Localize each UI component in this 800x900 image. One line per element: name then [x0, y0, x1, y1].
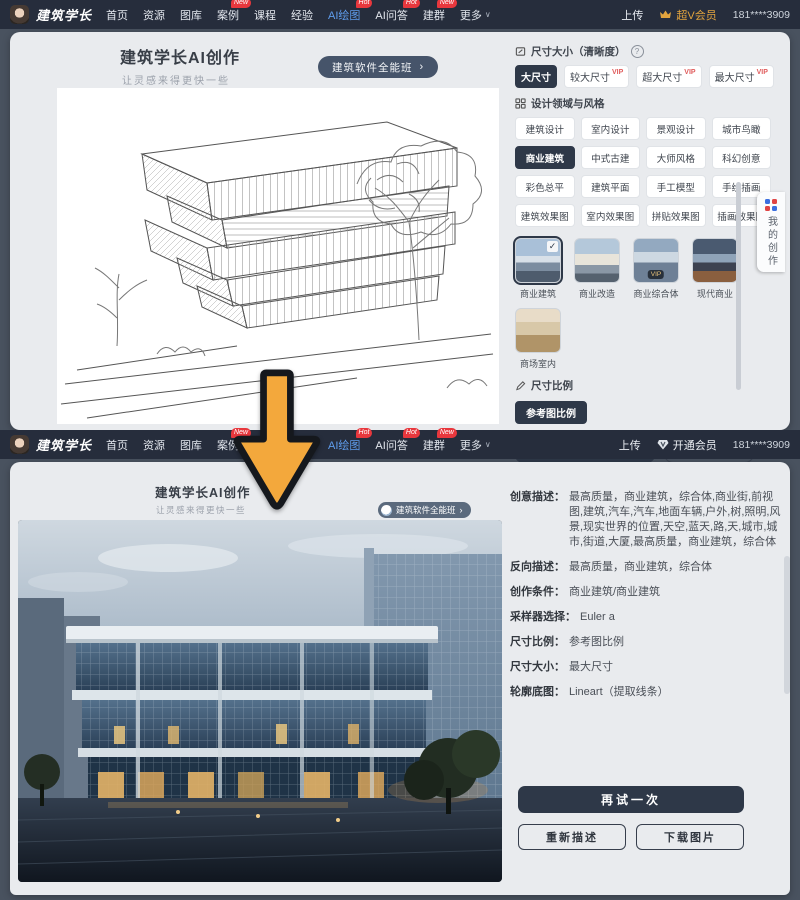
style-option[interactable]: 建筑平面 [581, 175, 641, 198]
vip-badge: VIP [648, 270, 664, 279]
field-value: 参考图比例 [569, 635, 786, 650]
redescribe-button[interactable]: 重新描述 [518, 824, 626, 850]
style-section-title: 设计领域与风格 [531, 96, 605, 111]
nav-item[interactable]: AI绘图 Hot [328, 437, 360, 453]
logo[interactable]: 建筑学长 [36, 5, 92, 24]
style-option-label: 彩色总平 [526, 180, 564, 194]
avatar[interactable] [10, 5, 29, 24]
nav-item[interactable]: 图库 [180, 7, 202, 23]
thumbnail-image [692, 238, 738, 283]
nav-item-label: 更多 [460, 7, 482, 23]
creation-card: 建筑学长AI创作 让灵感来得更快一些 建筑软件全能班 › [10, 32, 790, 430]
nav-item-label: AI问答 [375, 7, 407, 23]
chevron-down-icon: ∨ [485, 10, 491, 19]
size-option-label: 超大尺寸 [642, 69, 682, 84]
new-hot-badge: Hot [356, 428, 373, 438]
style-option[interactable]: 建筑效果图 [515, 204, 575, 227]
vip-badge: VIP [612, 69, 623, 76]
nav-right: 上传 开通会员 181****3909 [619, 437, 790, 453]
member-label: 超V会员 [676, 7, 716, 23]
style-thumbnail[interactable]: VIP 商业综合体 [633, 238, 679, 300]
style-option-label: 手绘插画 [722, 180, 760, 194]
style-option-label: 科幻创意 [722, 151, 760, 165]
chevron-down-icon: ∨ [485, 440, 491, 449]
style-option-label: 建筑设计 [526, 122, 564, 136]
render-scene [18, 520, 502, 882]
style-option[interactable]: 景观设计 [646, 117, 706, 140]
style-thumbnails: 商业建筑 商业改造 VIP [515, 238, 753, 370]
checkbox-checked-icon [547, 241, 558, 252]
style-option[interactable]: 拼贴效果图 [646, 204, 706, 227]
style-thumbnail[interactable]: 现代商业 [692, 238, 738, 300]
thumbnail-label: 商场室内 [515, 357, 561, 370]
thumbnail-label: 商业建筑 [515, 287, 561, 300]
nav-item-label: 案例 [217, 7, 239, 23]
result-field: 尺寸大小： 最大尺寸 [510, 660, 786, 675]
style-option-label: 大师风格 [657, 151, 695, 165]
style-option[interactable]: 城市鸟瞰 [712, 117, 772, 140]
style-thumbnail[interactable]: 商业建筑 [515, 238, 561, 300]
size-option-label: 最大尺寸 [715, 69, 755, 84]
chevron-right-icon: › [420, 61, 425, 73]
field-label: 采样器选择： [510, 610, 576, 625]
new-hot-badge: New [437, 428, 457, 438]
field-value: 最高质量，商业建筑，综合体,商业街,前视图,建筑,汽车,汽车,地面车辆,户外,树… [569, 490, 786, 550]
phone-number: 181****3909 [733, 439, 790, 451]
nav-item-label: AI绘图 [328, 437, 360, 453]
field-value: 商业建筑/商业建筑 [569, 585, 786, 600]
result-field: 尺寸比例： 参考图比例 [510, 635, 786, 650]
size-option-label: 较大尺寸 [570, 69, 610, 84]
nav-item-label: 首页 [106, 437, 128, 453]
nav-item[interactable]: 资源 [143, 437, 165, 453]
nav-item[interactable]: 案例 New [217, 7, 239, 23]
field-value: Lineart（提取线条） [569, 685, 786, 700]
style-options: 建筑设计 室内设计 景观设计 城市鸟瞰 商业建筑 [515, 117, 771, 227]
style-grid-icon [515, 98, 526, 109]
download-button[interactable]: 下载图片 [636, 824, 744, 850]
nav-item-label: 经验 [291, 7, 313, 23]
style-option-label: 城市鸟瞰 [722, 122, 760, 136]
member-label: 开通会员 [673, 437, 717, 453]
field-label: 轮廓底图： [510, 685, 565, 700]
chevron-right-icon: › [460, 505, 463, 515]
result-field: 反向描述： 最高质量，商业建筑，综合体 [510, 560, 786, 575]
thumbnail-label: 商业改造 [574, 287, 620, 300]
member-button[interactable]: 超V会员 [659, 7, 716, 23]
field-value: 最大尺寸 [569, 660, 786, 675]
new-hot-badge: Hot [403, 0, 420, 8]
field-label: 创作条件： [510, 585, 565, 600]
nav-item[interactable]: 图库 [180, 437, 202, 453]
help-icon[interactable]: ? [631, 45, 644, 58]
style-option-label: 手工模型 [657, 180, 695, 194]
style-option-label: 商业建筑 [526, 151, 564, 165]
nav-item[interactable]: 首页 [106, 437, 128, 453]
result-field: 采样器选择： Euler a [510, 610, 786, 625]
scrollbar[interactable] [784, 556, 790, 694]
my-creations-tab[interactable]: 我的创作 [757, 192, 785, 272]
style-option[interactable]: 中式古建 [581, 146, 641, 169]
style-option[interactable]: 科幻创意 [712, 146, 772, 169]
nav-item[interactable]: AI问答 Hot [375, 437, 407, 453]
style-option[interactable]: 彩色总平 [515, 175, 575, 198]
nav-item[interactable]: 建群 New [423, 437, 445, 453]
field-value: Euler a [580, 610, 786, 625]
course-icon [381, 505, 392, 516]
style-option[interactable]: 大师风格 [646, 146, 706, 169]
field-label: 尺寸比例： [510, 635, 565, 650]
nav-item[interactable]: AI问答 Hot [375, 7, 407, 23]
scrollbar[interactable] [736, 182, 741, 390]
size-option[interactable]: 大尺寸 [515, 65, 557, 88]
member-button[interactable]: 开通会员 [657, 437, 717, 453]
nav-item[interactable]: 更多 ∨ [460, 7, 491, 23]
nav-item-label: AI问答 [375, 437, 407, 453]
vip-diamond-icon [657, 439, 669, 450]
result-card: 建筑学长AI创作 让灵感来得更快一些 建筑软件全能班 › [10, 462, 790, 895]
top-navbar: 建筑学长 首页 资源 图库 [0, 0, 800, 29]
page: 建筑学长 首页 资源 图库 [0, 0, 800, 900]
ratio-section-header: 尺寸比例 [515, 378, 771, 393]
result-field: 轮廓底图： Lineart（提取线条） [510, 685, 786, 700]
thumbnail-label: 现代商业 [692, 287, 738, 300]
nav-item-label: 图库 [180, 7, 202, 23]
upload-button[interactable]: 上传 [621, 7, 643, 23]
page-subtitle: 让灵感来得更快一些 [122, 72, 240, 87]
nav-item[interactable]: 更多 ∨ [460, 437, 491, 453]
style-thumbnail[interactable]: 商场室内 [515, 308, 561, 370]
nav-item-label: 建群 [423, 437, 445, 453]
result-field: 创意描述： 最高质量，商业建筑，综合体,商业街,前视图,建筑,汽车,汽车,地面车… [510, 490, 786, 550]
result-details: 创意描述： 最高质量，商业建筑，综合体,商业街,前视图,建筑,汽车,汽车,地面车… [510, 490, 786, 710]
style-option-label: 景观设计 [657, 122, 695, 136]
nav-item[interactable]: 课程 [254, 7, 276, 23]
new-hot-badge: Hot [356, 0, 373, 8]
style-option-label: 中式古建 [591, 151, 629, 165]
nav-item-label: 资源 [143, 437, 165, 453]
style-option[interactable]: 室内效果图 [581, 204, 641, 227]
upload-button[interactable]: 上传 [619, 437, 641, 453]
ratio-section-title: 尺寸比例 [531, 378, 573, 393]
vip-badge: VIP [684, 69, 695, 76]
thumbnail-label: 商业综合体 [633, 287, 679, 300]
course-button[interactable]: 建筑软件全能班 › [378, 502, 471, 518]
nav-item[interactable]: AI绘图 Hot [328, 7, 360, 23]
ratio-option[interactable]: 参考图比例 [515, 401, 587, 424]
size-option[interactable]: 最大尺寸 VIP [709, 65, 774, 88]
nav-item-label: 首页 [106, 7, 128, 23]
page-title: 建筑学长AI创作 [120, 44, 240, 68]
style-option-label: 室内效果图 [586, 209, 634, 223]
size-option[interactable]: 超大尺寸 VIP [636, 65, 701, 88]
size-options: 大尺寸 较大尺寸 VIP 超大尺寸 VIP 最大尺寸 [515, 65, 771, 88]
hero-header: 建筑学长AI创作 让灵感来得更快一些 [120, 44, 240, 87]
thumbnail-image: VIP [633, 238, 679, 283]
avatar[interactable] [10, 435, 29, 454]
new-hot-badge: New [437, 0, 457, 8]
crown-icon [659, 9, 672, 20]
size-option-label: 大尺寸 [521, 69, 551, 84]
nav-item[interactable]: 经验 [291, 7, 313, 23]
style-option-label: 拼贴效果图 [652, 209, 700, 223]
field-label: 尺寸大小： [510, 660, 565, 675]
my-creations-label: 我的创作 [764, 216, 779, 268]
course-button[interactable]: 建筑软件全能班 › [318, 56, 438, 78]
nav-item-label: 课程 [254, 7, 276, 23]
course-button-label: 建筑软件全能班 [396, 504, 456, 516]
nav-item[interactable]: 首页 [106, 7, 128, 23]
bottom-navbar: 建筑学长 首页 资源 图库 [0, 430, 800, 459]
thumbnail-image [515, 308, 561, 353]
field-label: 反向描述： [510, 560, 565, 575]
size-option[interactable]: 较大尺寸 VIP [564, 65, 629, 88]
nav-item[interactable]: 建群 New [423, 7, 445, 23]
nav-item-label: 更多 [460, 437, 482, 453]
course-button-label: 建筑软件全能班 [332, 60, 413, 75]
apps-icon [765, 199, 777, 211]
style-option[interactable]: 建筑设计 [515, 117, 575, 140]
size-section-title: 尺寸大小（清晰度） [531, 44, 626, 59]
size-section-header: 尺寸大小（清晰度） ? [515, 44, 771, 59]
nav-item-label: AI绘图 [328, 7, 360, 23]
nav-item-label: 资源 [143, 7, 165, 23]
nav-menu: 首页 资源 图库 案例 New [106, 7, 491, 23]
new-hot-badge: New [231, 0, 251, 8]
nav-item-label: 图库 [180, 437, 202, 453]
thumbnail-image [515, 238, 561, 283]
thumbnail-image [574, 238, 620, 283]
style-option-label: 室内设计 [591, 122, 629, 136]
style-option[interactable]: 商业建筑 [515, 146, 575, 169]
size-icon [515, 46, 526, 57]
style-thumbnail[interactable]: 商业改造 [574, 238, 620, 300]
nav-right: 上传 超V会员 181****3909 [621, 7, 790, 23]
new-hot-badge: Hot [403, 428, 420, 438]
pencil-icon [515, 380, 526, 391]
style-option-label: 建筑效果图 [521, 209, 569, 223]
style-option[interactable]: 室内设计 [581, 117, 641, 140]
phone-number: 181****3909 [733, 9, 790, 21]
vip-badge: VIP [757, 69, 768, 76]
style-option-label: 建筑平面 [591, 180, 629, 194]
style-option[interactable]: 手工模型 [646, 175, 706, 198]
down-arrow [228, 366, 324, 516]
settings-panel: 尺寸大小（清晰度） ? 大尺寸 较大尺寸 VIP 超大尺 [515, 36, 771, 463]
field-value: 最高质量，商业建筑，综合体 [569, 560, 786, 575]
result-field: 创作条件： 商业建筑/商业建筑 [510, 585, 786, 600]
retry-button[interactable]: 再试一次 [518, 786, 744, 813]
nav-item-label: 建群 [423, 7, 445, 23]
field-label: 创意描述： [510, 490, 565, 550]
nav-item[interactable]: 资源 [143, 7, 165, 23]
generated-image[interactable] [18, 520, 502, 882]
style-section-header: 设计领域与风格 [515, 96, 771, 111]
logo[interactable]: 建筑学长 [36, 435, 92, 454]
